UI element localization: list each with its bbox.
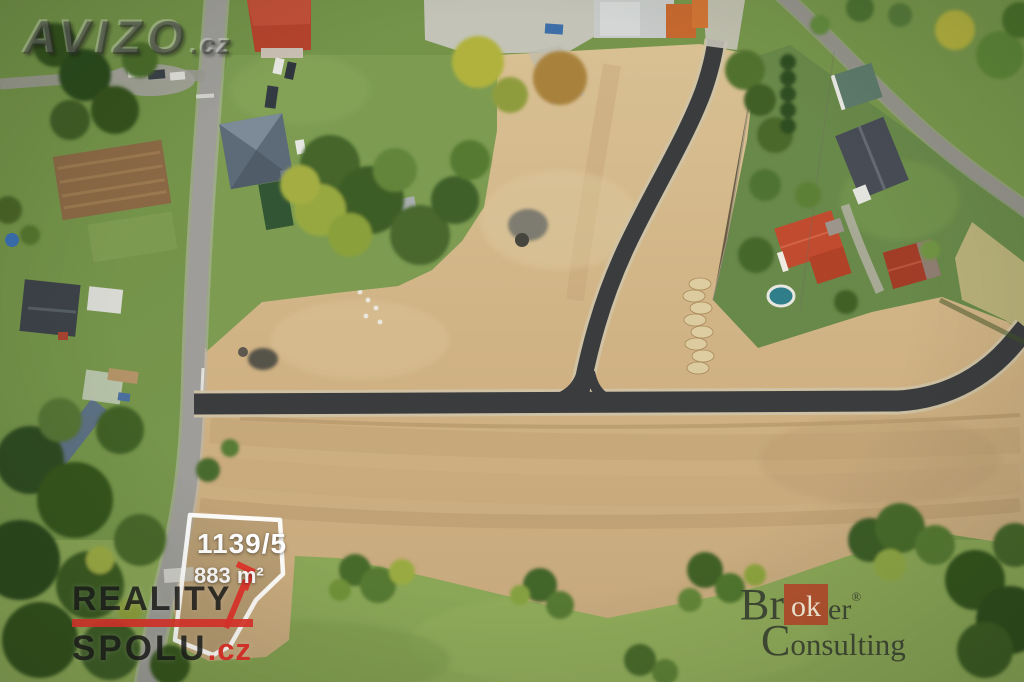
reality-spolu-logo: REALITY SPOLU.cz: [72, 582, 253, 666]
swimming-pool: [768, 286, 794, 306]
blue-pool-toy: [5, 233, 19, 247]
plot-number-label: 1139/5: [197, 528, 287, 560]
reality-logo-line2: SPOLU.cz: [72, 631, 253, 666]
registered-trademark-icon: ®: [851, 589, 861, 604]
red-roof-building-top: [247, 0, 311, 58]
reality-logo-suffix: .cz: [208, 632, 252, 667]
broker-consulting-logo: Broker® ​Consulting: [740, 583, 906, 663]
broker-logo-line2: ​Consulting: [761, 619, 906, 663]
avizo-watermark-suffix: .cz: [191, 30, 233, 60]
avizo-watermark: AVIZO.cz: [24, 10, 233, 65]
lawn-light-patch: [230, 55, 370, 125]
industrial-building-top: [594, 0, 708, 38]
blue-car: [545, 23, 564, 34]
reality-logo-underline: [72, 619, 253, 627]
avizo-watermark-main: AVIZO: [24, 11, 189, 64]
broker-logo-highlight: ok: [784, 584, 828, 625]
reality-logo-line1: REALITY: [72, 582, 253, 616]
orange-container: [666, 4, 696, 38]
aerial-photo: AVIZO.cz 1139/5 883 m² REALITY SPOLU.cz …: [0, 0, 1024, 682]
